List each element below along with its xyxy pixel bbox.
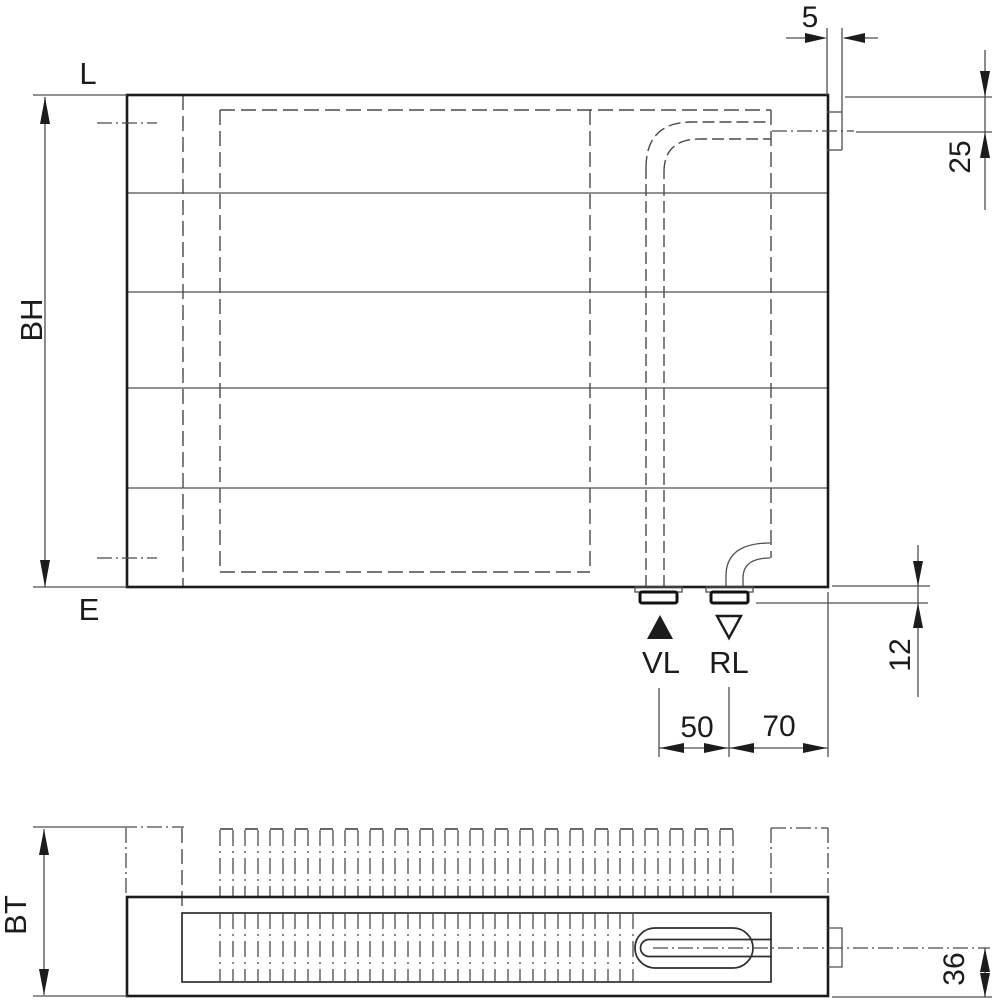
dim-tab-width: 5	[786, 1, 878, 43]
dim-5-value: 5	[802, 1, 819, 34]
label-flow: VL	[642, 645, 680, 680]
label-bh: BH	[14, 298, 49, 341]
label-drain: E	[79, 592, 100, 627]
flow-symbol	[647, 615, 673, 639]
plan-body-outline	[127, 897, 828, 996]
plan-view: BT 36	[0, 827, 992, 997]
return-symbol	[717, 616, 741, 638]
dim-build-height: BH	[14, 95, 127, 587]
phantom-lines	[122, 827, 828, 912]
convector-hidden-outline	[183, 95, 771, 587]
internal-pipes	[646, 122, 771, 587]
convector-fin-legs-inner	[220, 913, 633, 982]
dim-build-depth: BT	[0, 827, 127, 996]
dim-connection-offset: 25	[845, 50, 992, 210]
flow-connection-stub	[635, 587, 682, 603]
dim-36-value: 36	[938, 952, 971, 985]
label-return: RL	[709, 645, 749, 680]
dim-50-value: 50	[680, 711, 713, 744]
dim-70-value: 70	[762, 710, 795, 743]
side-connection-tab	[772, 28, 854, 150]
convector-fins	[220, 829, 733, 897]
radiator-technical-drawing: 5 25 BH L E	[0, 0, 1000, 1000]
dim-stub-depth: 12	[756, 545, 930, 697]
radiator-panel-outline	[127, 95, 828, 587]
drawing-svg: 5 25 BH L E	[0, 0, 1000, 1000]
label-bt: BT	[0, 895, 33, 935]
dim-pipe-center: 36	[832, 948, 992, 997]
dim-12-value: 12	[884, 638, 917, 671]
return-connection-stub	[706, 587, 753, 603]
dim-25-value: 25	[944, 140, 977, 173]
label-vent: L	[79, 56, 96, 91]
front-view: 5 25 BH L E	[14, 1, 992, 757]
